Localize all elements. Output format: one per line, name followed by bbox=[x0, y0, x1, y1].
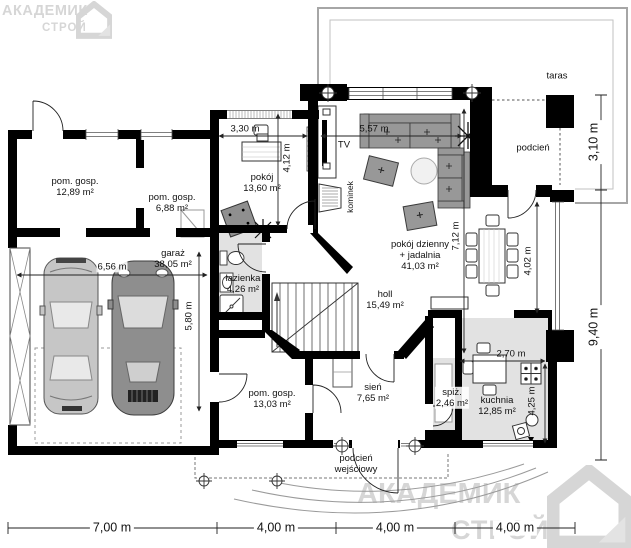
room-name: spiż. bbox=[436, 387, 468, 398]
dim-jadalnia-height: 4,02 m bbox=[522, 246, 533, 275]
sideboard bbox=[431, 297, 468, 309]
dim-kuchnia-width: 2,70 m bbox=[496, 348, 525, 359]
fireplace bbox=[319, 184, 341, 212]
dim-garaz-height: 5,80 m bbox=[183, 301, 194, 330]
label-podcien: podcień bbox=[516, 142, 549, 153]
room-area: 41,03 m² bbox=[391, 262, 449, 273]
round-rug bbox=[411, 158, 437, 184]
dim-bottom-2: 4,00 m bbox=[254, 521, 298, 536]
sofa-side bbox=[438, 148, 470, 208]
dim-bottom-1: 7,00 m bbox=[90, 521, 134, 536]
dim-pokoj-height: 4,12 m bbox=[281, 143, 292, 172]
room-name: garaż bbox=[154, 248, 192, 259]
room-area: 13,03 m² bbox=[249, 399, 296, 410]
room-area: 4,26 m² bbox=[226, 284, 261, 295]
dim-salon-height: 7,12 m bbox=[450, 221, 461, 250]
dim-salon-width: 5,57 m bbox=[359, 123, 388, 134]
armchair-2 bbox=[403, 202, 437, 231]
tv-unit bbox=[318, 106, 336, 178]
room-name: pokój dzienny bbox=[391, 239, 449, 250]
room-name: kuchnia bbox=[478, 395, 516, 406]
dining-set bbox=[466, 215, 518, 296]
room-area: 6,88 m² bbox=[149, 203, 196, 214]
room-label-pokoj: pokój 13,60 m² bbox=[243, 172, 281, 194]
room-area: 13,60 m² bbox=[243, 183, 281, 194]
room-area: 38,05 m² bbox=[154, 259, 192, 270]
armchair-1 bbox=[364, 156, 399, 187]
dim-right-bottom: 9,40 m bbox=[587, 305, 602, 349]
room-label-holl: holl 15,49 m² bbox=[366, 289, 404, 311]
dim-right-top: 3,10 m bbox=[587, 120, 602, 164]
room-area: 12,89 m² bbox=[52, 187, 99, 198]
room-name: holl bbox=[366, 289, 404, 300]
floorplan-drawing bbox=[0, 0, 631, 548]
room-name: pom. gosp. bbox=[52, 176, 99, 187]
label-podcien-wejsciowy: podcień wejściowy bbox=[335, 453, 378, 475]
dim-pokoj-width: 3,30 m bbox=[230, 123, 259, 134]
hall-closet bbox=[333, 357, 352, 387]
room-name: pom. gosp. bbox=[249, 388, 296, 399]
room-label-pom-gosp-3: pom. gosp. 13,03 m² bbox=[249, 388, 296, 410]
room-label-pom-gosp-1: pom. gosp. 12,89 m² bbox=[52, 176, 99, 198]
room-name: pom. gosp. bbox=[149, 192, 196, 203]
room-label-garaz: garaż 38,05 m² bbox=[154, 248, 192, 270]
label-kominek: kominek bbox=[345, 181, 355, 213]
dim-bottom-4: 4,00 m bbox=[493, 521, 537, 536]
room-name: sień bbox=[357, 382, 389, 393]
room-label-sien: sień 7,65 m² bbox=[357, 382, 389, 404]
room-area: 2,46 m² bbox=[436, 398, 468, 409]
room-label-lazienka: łazienka 4,26 m² bbox=[226, 273, 261, 295]
room-area: 12,85 m² bbox=[478, 406, 516, 417]
floorplan-page: АКАДЕМИК СТРОЙ АКАДЕМИК СТРОЙ bbox=[0, 0, 631, 548]
room-name: + jadalnia bbox=[391, 250, 449, 261]
dim-bottom-3: 4,00 m bbox=[373, 521, 417, 536]
car-left bbox=[40, 258, 102, 414]
dim-kuchnia-height: 4,25 m bbox=[526, 386, 537, 415]
room-area: 7,65 m² bbox=[357, 393, 389, 404]
room-name: łazienka bbox=[226, 273, 261, 284]
dim-garaz-width: 6,56 m bbox=[96, 261, 127, 272]
room-area: 15,49 m² bbox=[366, 300, 404, 311]
room-label-spiz: spiż. 2,46 m² bbox=[435, 387, 469, 409]
room-label-salon: pokój dzienny + jadalnia 41,03 m² bbox=[391, 239, 449, 273]
room-label-kuchnia: kuchnia 12,85 m² bbox=[478, 395, 516, 417]
car-right bbox=[108, 261, 178, 415]
label-taras: taras bbox=[546, 70, 567, 81]
label-tv: TV bbox=[338, 139, 350, 150]
room-name: pokój bbox=[243, 172, 281, 183]
room-label-pom-gosp-2: pom. gosp. 6,88 m² bbox=[149, 192, 196, 214]
